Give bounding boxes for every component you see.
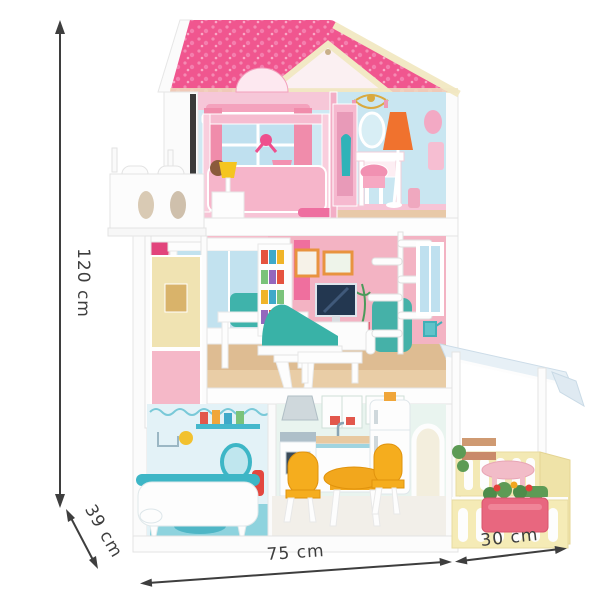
fridge-handle-top — [374, 410, 378, 424]
dollhouse-illustration: 120 cm 39 cm 75 cm 30 cm — [0, 0, 600, 600]
bottle-blue — [224, 413, 232, 424]
coffee-table-top — [298, 352, 362, 363]
terrace-table-top — [482, 461, 534, 479]
width-label: 75 cm — [266, 541, 325, 565]
wall-cabinet-decal — [428, 142, 444, 170]
tub-foot-r — [238, 526, 246, 536]
flower-box — [482, 482, 548, 533]
dollhouse — [108, 20, 459, 552]
coffee-table-leg-l — [302, 363, 308, 383]
width-arrow-line — [148, 562, 444, 583]
elevator-top-rail — [145, 236, 207, 242]
terrace — [440, 344, 584, 548]
toilet — [140, 509, 162, 523]
sink-mirror — [222, 445, 250, 479]
stool-leg-right — [379, 188, 383, 204]
floor-lamp-base — [386, 202, 402, 208]
coffee-table-leg-r — [352, 363, 358, 383]
arrowhead-left-2 — [455, 556, 467, 564]
arrowhead-right — [440, 558, 453, 566]
ground-floor — [136, 392, 446, 540]
countertop — [316, 436, 372, 444]
elevator — [145, 236, 207, 428]
desk-leg-l — [222, 322, 228, 368]
arrowhead-up — [55, 20, 65, 34]
tv-stand — [332, 316, 340, 322]
wall-mirror-decal — [424, 110, 442, 134]
picture-frame-2 — [324, 252, 352, 274]
balcony-finial-left — [112, 148, 117, 172]
elevator-picture — [165, 284, 187, 312]
rug — [298, 208, 334, 217]
balcony-parapet — [110, 174, 204, 232]
kitchen-floor — [272, 496, 446, 540]
balcony-window-left — [138, 191, 154, 219]
bottle-orange — [212, 410, 220, 424]
roof — [158, 20, 459, 94]
dress — [341, 134, 351, 176]
terrace-arrow-line — [461, 549, 560, 561]
armchair — [372, 298, 412, 352]
pink-bottle — [408, 188, 420, 208]
arrowhead-upleft — [66, 509, 75, 522]
gable-peg-hole — [325, 49, 331, 55]
balcony-base — [108, 228, 206, 236]
product-dimension-image: 120 cm 39 cm 75 cm 30 cm — [0, 0, 600, 600]
range-hood — [282, 396, 318, 420]
arrowhead-downright — [89, 556, 98, 569]
attic-floor-wood-edge — [332, 210, 446, 218]
duck-decal — [179, 431, 193, 445]
bed-canopy-rail — [202, 114, 330, 124]
cooktop — [280, 432, 316, 442]
plant-2 — [457, 460, 469, 472]
cabinet-trim — [316, 444, 372, 448]
depth-label: 39 cm — [80, 501, 126, 561]
height-dimension: 120 cm — [55, 20, 93, 508]
balcony-door-opening — [190, 94, 196, 180]
tub-foot-l — [150, 526, 158, 536]
arrowhead-down — [55, 494, 65, 508]
stool-skirt — [363, 176, 385, 188]
balcony-window-right — [170, 191, 186, 219]
item-on-fridge — [384, 392, 396, 401]
plant-1 — [452, 445, 466, 459]
bench-back — [462, 438, 496, 446]
yellow-lamp-stem — [226, 178, 230, 192]
bath-shelf — [196, 424, 260, 429]
depth-dimension: 39 cm — [66, 501, 126, 569]
picture-frame-1 — [296, 250, 318, 276]
arrowhead-left — [140, 579, 152, 587]
bench-seat — [462, 452, 496, 460]
vanity-mirror — [360, 113, 384, 147]
stool-leg-left — [365, 188, 369, 204]
red-pot-2 — [346, 417, 355, 425]
height-label: 120 cm — [73, 248, 93, 318]
bottle-green — [236, 411, 244, 424]
yellow-lamp-shade — [219, 162, 237, 178]
bottle-red — [200, 412, 208, 424]
